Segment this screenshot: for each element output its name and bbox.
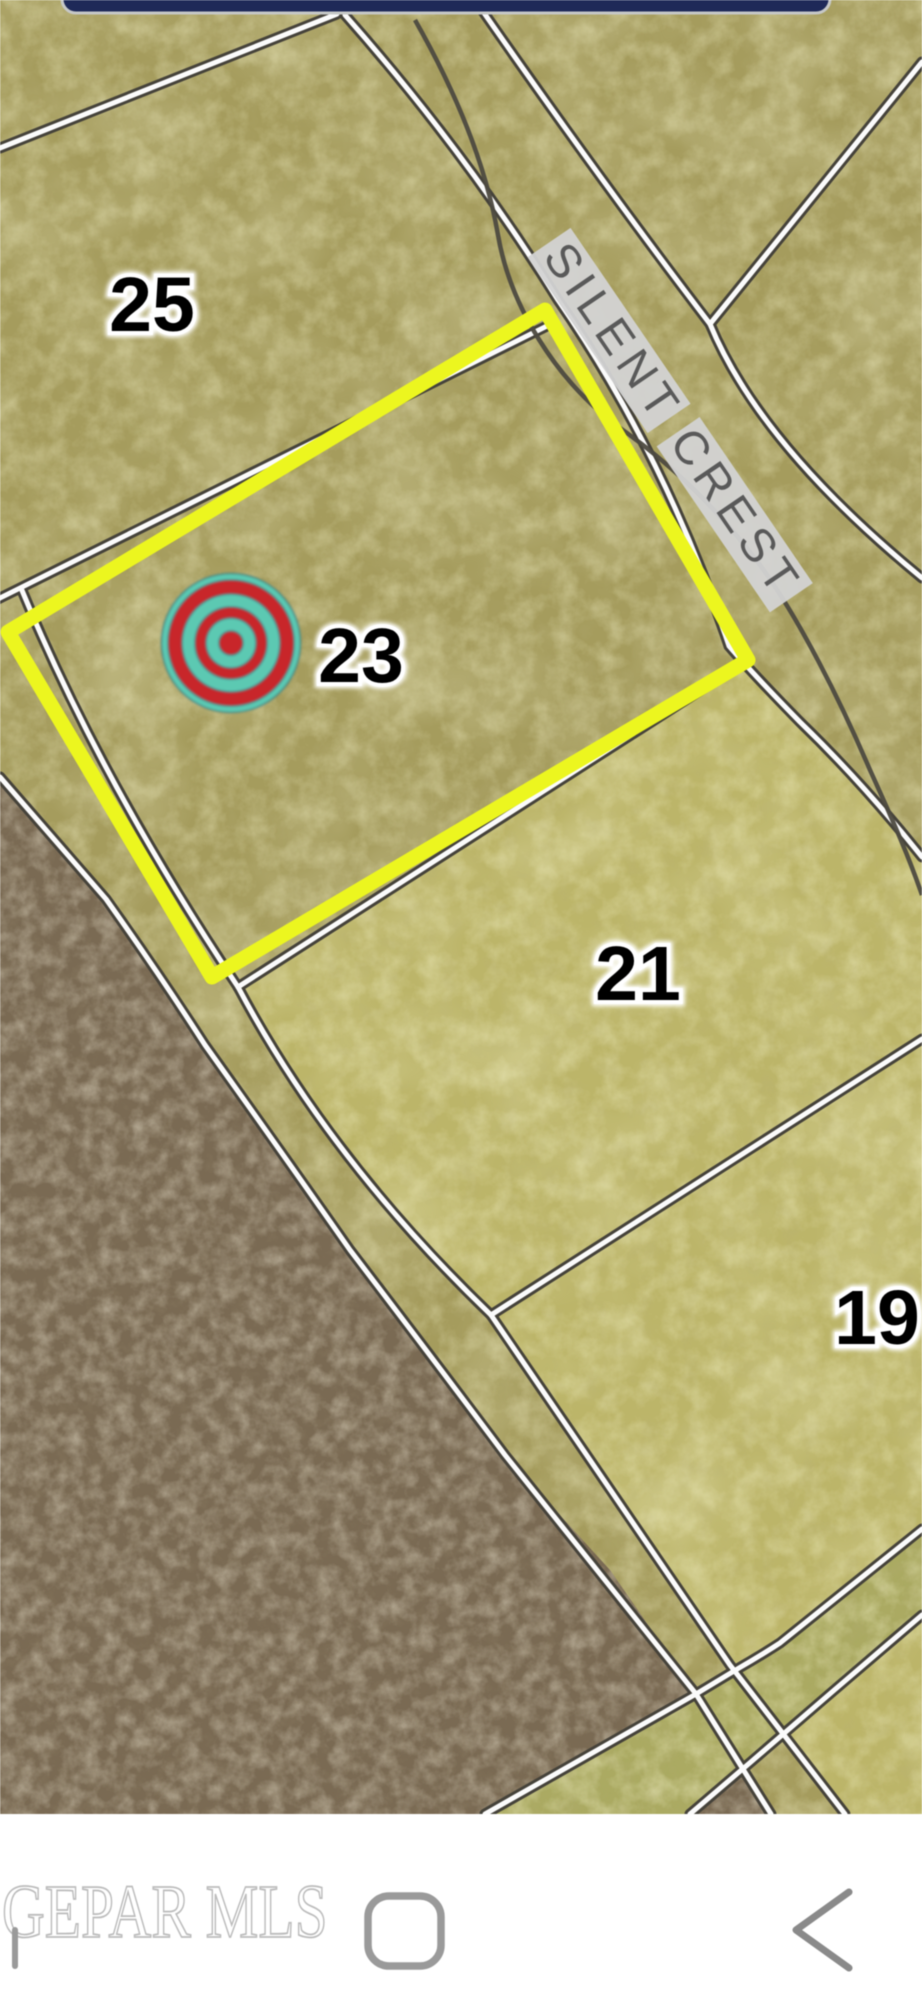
- svg-text:21: 21: [595, 931, 681, 1017]
- svg-text:23: 23: [318, 613, 404, 699]
- svg-text:19: 19: [834, 1275, 920, 1361]
- svg-text:25: 25: [109, 262, 195, 348]
- svg-text:GEPAR MLS: GEPAR MLS: [2, 1869, 328, 1954]
